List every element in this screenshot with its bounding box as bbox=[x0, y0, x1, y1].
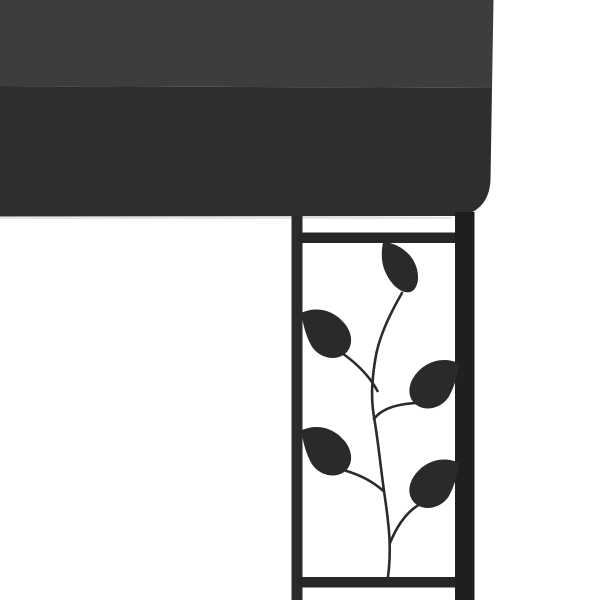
trellis-top-rung bbox=[297, 233, 467, 244]
gazebo-illustration bbox=[0, 0, 600, 600]
trellis-left-rail bbox=[292, 215, 303, 600]
corner-post bbox=[455, 212, 475, 600]
canopy-top-face bbox=[0, 0, 494, 88]
gazebo-product-photo bbox=[0, 0, 600, 600]
canopy-shade-face bbox=[0, 86, 492, 217]
trellis-bottom-rung bbox=[297, 577, 467, 588]
